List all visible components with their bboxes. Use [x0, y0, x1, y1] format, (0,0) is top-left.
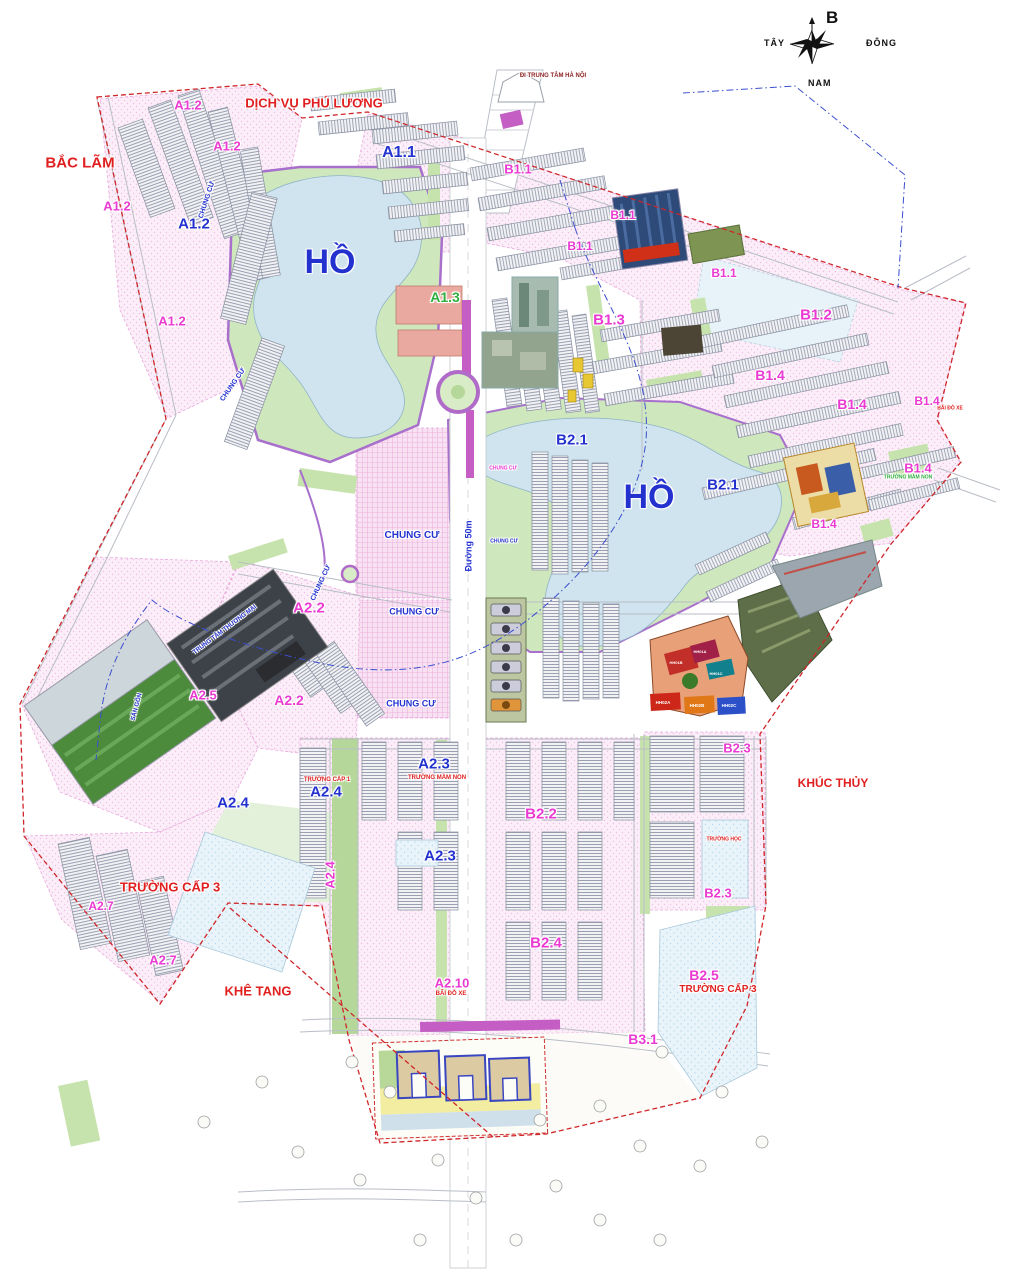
compass-south-label: NAM [808, 78, 832, 88]
school-campus-block [372, 1037, 547, 1139]
mixed-use-blocks [396, 286, 462, 356]
apartment-tower-strip [486, 598, 526, 722]
master-plan-map: BẮC LÃMDỊCH VỤ PHÚ LƯƠNGKHÚC THỦYKHÊ TAN… [0, 0, 1024, 1276]
compass-east-label: ĐÔNG [866, 38, 897, 48]
compass-north-label: B [826, 8, 838, 28]
compass-rose: B TÂY ĐÔNG NAM [764, 8, 904, 96]
map-canvas [0, 0, 1024, 1276]
compass-west-label: TÂY [764, 38, 785, 48]
